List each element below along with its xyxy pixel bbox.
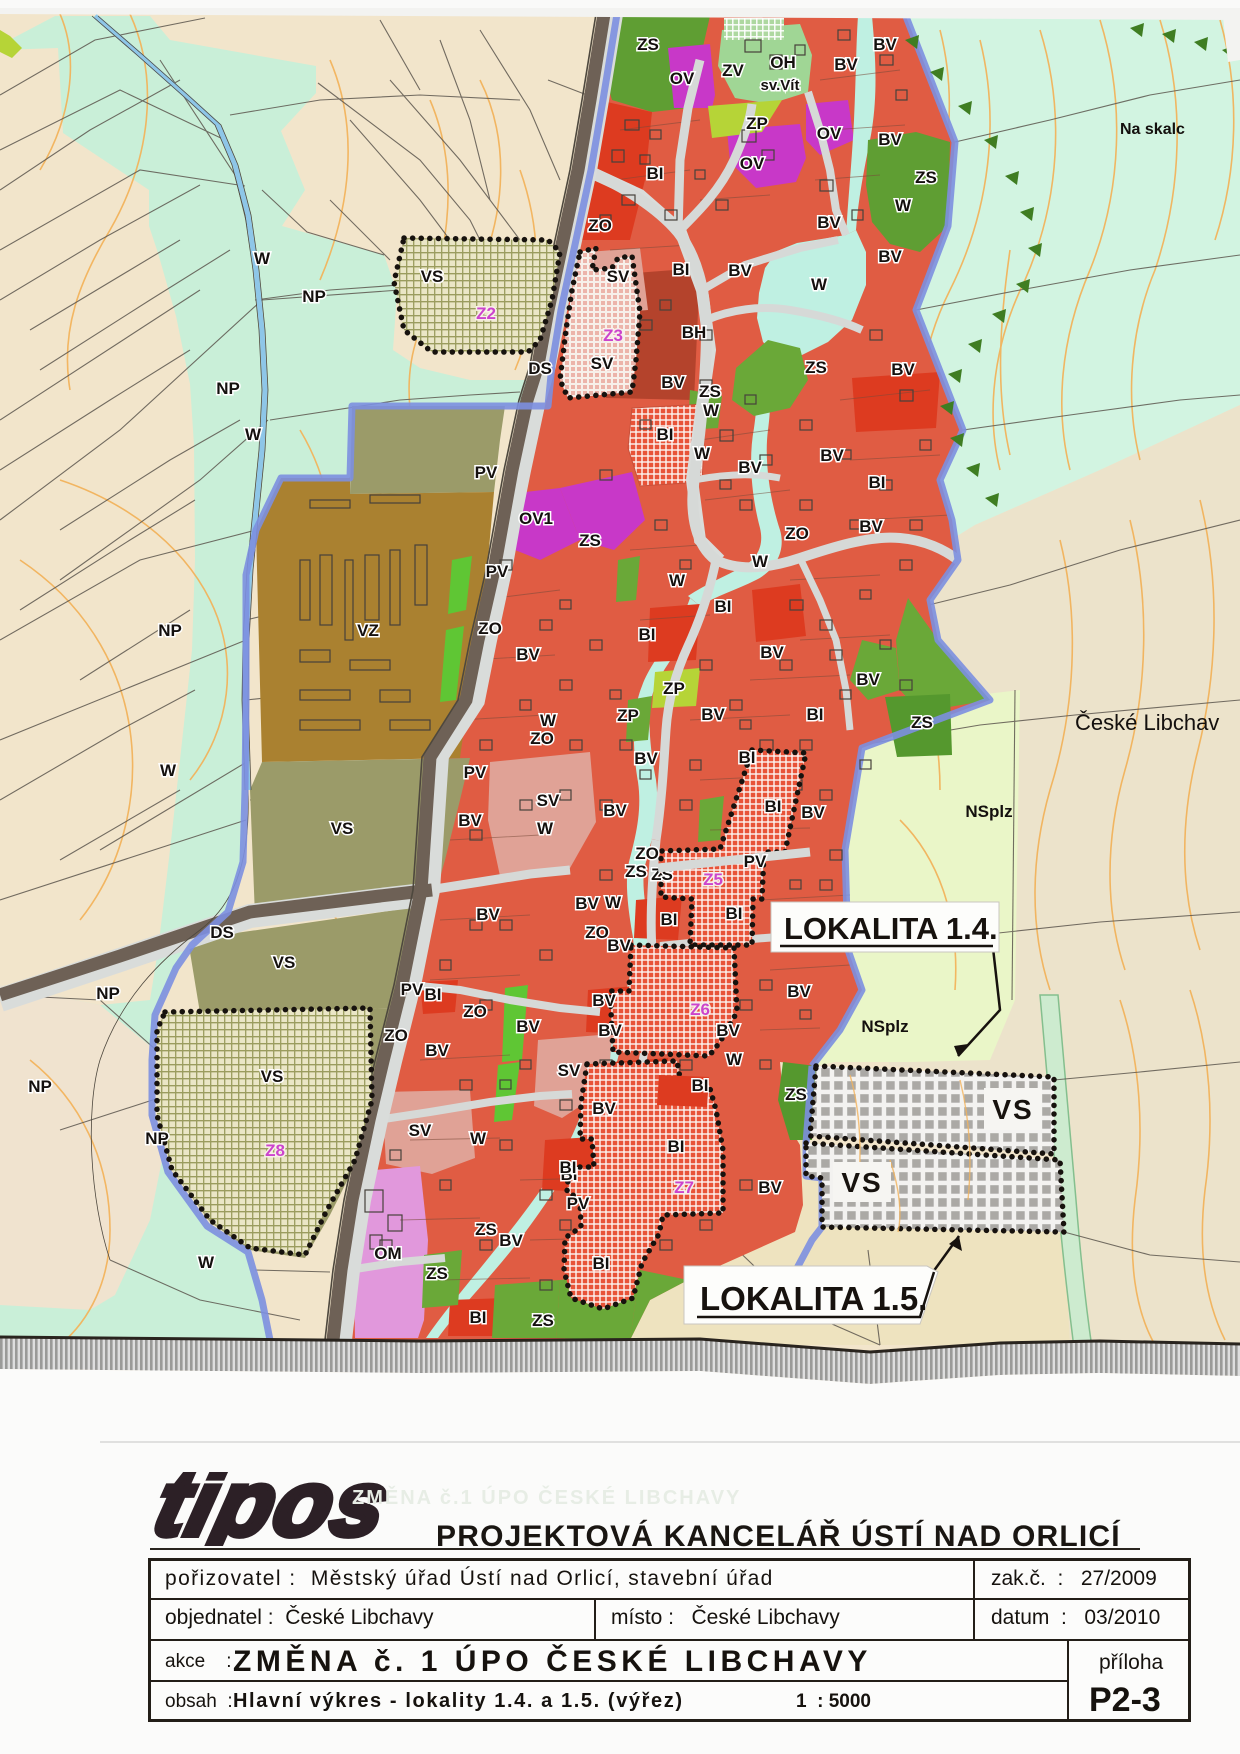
svg-text:BI: BI [661,910,678,929]
svg-text:BV: BV [476,905,500,924]
svg-text:BV: BV [592,1099,616,1118]
svg-text:VS: VS [261,1067,284,1086]
svg-text:BI: BI [560,1158,577,1177]
svg-text:LOKALITA 1.4.: LOKALITA 1.4. [784,911,998,946]
svg-text:BV: BV [758,1178,782,1197]
svg-text:Na skalc: Na skalc [1120,121,1185,138]
svg-text:ZS: ZS [625,862,647,881]
svg-text:ZS: ZS [532,1311,554,1330]
svg-text:BV: BV [661,373,685,392]
svg-text:BV: BV [592,991,616,1010]
svg-text:W: W [605,893,622,912]
svg-text:NP: NP [145,1129,169,1148]
svg-text:BV: BV [878,130,902,149]
svg-text:W: W [540,711,557,730]
svg-text:OV1: OV1 [519,509,553,528]
svg-text:ZO: ZO [478,619,502,638]
svg-text:W: W [669,571,686,590]
svg-text:W: W [752,552,769,571]
svg-text:NP: NP [158,621,182,640]
svg-text:DS: DS [210,923,234,942]
svg-text:BV: BV [598,1021,622,1040]
svg-text:BI: BI [657,425,674,444]
svg-text:PV: PV [744,852,767,871]
svg-text:BI: BI [739,748,756,767]
svg-text:SV: SV [558,1061,581,1080]
svg-text:ZS: ZS [785,1085,807,1104]
svg-text:BI: BI [470,1308,487,1327]
svg-text:České Libchav: České Libchav [1075,710,1219,735]
svg-text:BI: BI [692,1076,709,1095]
svg-text:BI: BI [593,1254,610,1273]
svg-text:BV: BV [716,1021,740,1040]
svg-text:BV: BV [603,801,627,820]
svg-text:ZS: ZS [637,35,659,54]
svg-text:BH: BH [682,323,707,342]
svg-text:ZO: ZO [585,923,609,942]
svg-text:PV: PV [486,562,509,581]
svg-text:BV: BV [891,360,915,379]
svg-text:PV: PV [567,1194,590,1213]
svg-text:BV: BV [458,811,482,830]
svg-text:BI: BI [639,625,656,644]
svg-text:Z6: Z6 [690,1000,710,1019]
svg-text:NP: NP [302,287,326,306]
svg-text:BV: BV [873,35,897,54]
svg-text:ZS: ZS [579,531,601,550]
svg-text:BI: BI [807,705,824,724]
svg-text:ZO: ZO [588,216,612,235]
svg-text:BV: BV [856,670,880,689]
svg-text:SV: SV [537,791,560,810]
svg-text:SV: SV [409,1121,432,1140]
svg-text:BI: BI [673,260,690,279]
svg-text:BV: BV [728,261,752,280]
svg-text:VS: VS [992,1094,1033,1125]
svg-text:OV: OV [670,69,695,88]
svg-text:ZO: ZO [635,844,659,863]
svg-text:ZS: ZS [915,168,937,187]
svg-text:DS: DS [528,359,552,378]
svg-text:ZV: ZV [722,61,744,80]
svg-text:ZO: ZO [785,524,809,543]
svg-text:BV: BV [801,803,825,822]
svg-text:ZS: ZS [911,713,933,732]
svg-text:BI: BI [715,597,732,616]
svg-text:ZS: ZS [475,1220,497,1239]
svg-text:W: W [694,444,711,463]
svg-text:NP: NP [28,1077,52,1096]
svg-text:Z7: Z7 [674,1178,694,1197]
svg-text:BI: BI [726,904,743,923]
svg-text:Z8: Z8 [265,1141,285,1160]
svg-text:OH: OH [770,53,796,72]
svg-text:NSplz: NSplz [965,802,1012,821]
svg-text:SV: SV [591,354,614,373]
svg-text:BV: BV [607,936,631,955]
svg-text:W: W [198,1253,215,1272]
svg-text:BI: BI [869,473,886,492]
svg-text:VS: VS [421,267,444,286]
svg-text:VZ: VZ [357,621,379,640]
svg-text:PV: PV [464,763,487,782]
svg-text:SV: SV [607,267,630,286]
svg-text:BV: BV [516,1017,540,1036]
svg-text:sv.Vít: sv.Vít [761,77,800,94]
svg-text:BI: BI [647,164,664,183]
svg-text:BV: BV [859,517,883,536]
svg-text:BV: BV [634,749,658,768]
svg-text:W: W [245,425,262,444]
svg-text:OV: OV [817,124,842,143]
svg-text:W: W [254,249,271,268]
svg-text:LOKALITA 1.5.: LOKALITA 1.5. [700,1280,927,1317]
svg-text:VS: VS [331,819,354,838]
svg-text:BV: BV [817,213,841,232]
svg-text:W: W [811,275,828,294]
svg-text:BV: BV [516,645,540,664]
svg-text:VS: VS [273,953,296,972]
svg-text:OM: OM [374,1244,401,1263]
svg-text:NP: NP [96,984,120,1003]
svg-text:BV: BV [738,458,762,477]
svg-text:NP: NP [216,379,240,398]
svg-text:ZS: ZS [805,358,827,377]
svg-text:BV: BV [701,705,725,724]
svg-text:ZP: ZP [746,114,768,133]
svg-text:BI: BI [668,1137,685,1156]
svg-text:BV: BV [499,1231,523,1250]
svg-text:BV: BV [878,247,902,266]
svg-text:BV: BV [834,55,858,74]
svg-text:PV: PV [401,980,424,999]
svg-text:VS: VS [841,1167,882,1198]
svg-text:W: W [160,761,177,780]
svg-text:NSplz: NSplz [861,1017,908,1036]
svg-text:W: W [470,1129,487,1148]
svg-text:W: W [726,1050,743,1069]
svg-text:ZO: ZO [530,729,554,748]
svg-text:BV: BV [760,643,784,662]
svg-text:BV: BV [820,446,844,465]
svg-text:BI: BI [425,985,442,1004]
svg-text:Z5: Z5 [703,870,723,889]
svg-text:OV: OV [740,154,765,173]
svg-text:ZO: ZO [384,1026,408,1045]
svg-text:Z3: Z3 [603,326,623,345]
svg-text:ZS: ZS [426,1264,448,1283]
svg-text:ZP: ZP [617,706,639,725]
svg-text:W: W [895,196,912,215]
svg-text:BV: BV [575,894,599,913]
svg-text:ZS: ZS [699,382,721,401]
svg-text:PV: PV [475,463,498,482]
svg-text:ZO: ZO [463,1002,487,1021]
svg-text:ZP: ZP [663,679,685,698]
svg-text:BI: BI [765,797,782,816]
svg-text:BV: BV [787,982,811,1001]
svg-text:Z2: Z2 [476,304,496,323]
svg-text:W: W [703,401,720,420]
svg-text:W: W [537,819,554,838]
svg-text:BV: BV [425,1041,449,1060]
